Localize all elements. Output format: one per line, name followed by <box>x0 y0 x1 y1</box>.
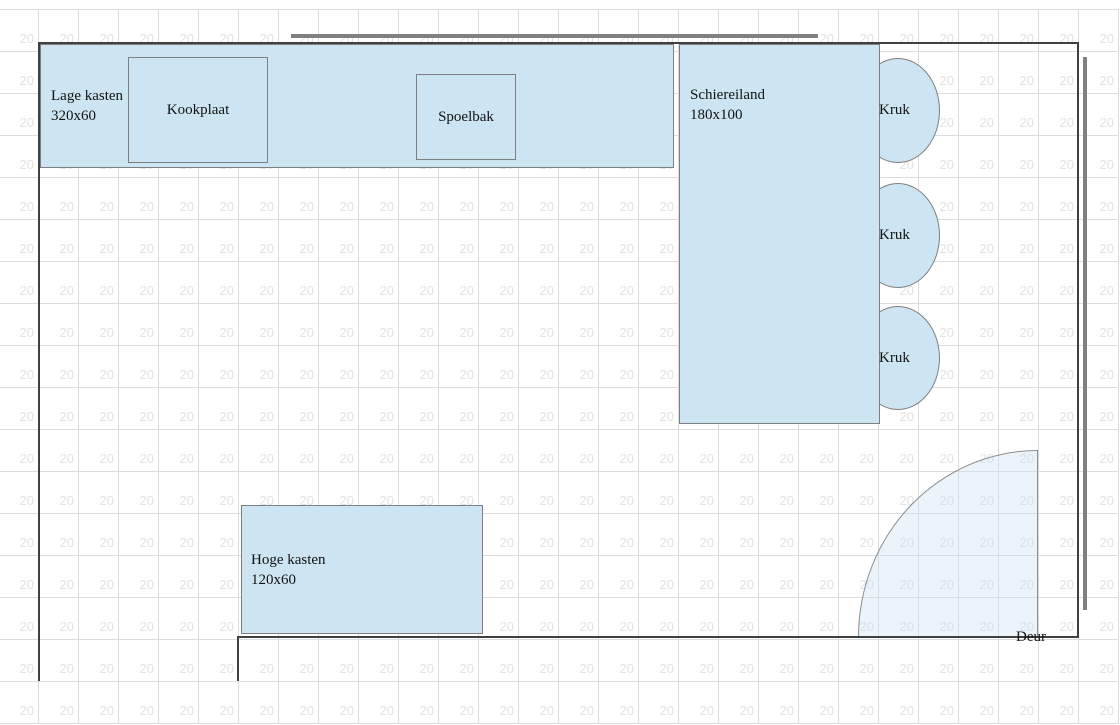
grid-cell: 20 <box>519 262 559 304</box>
grid-cell: 20 <box>0 388 39 430</box>
grid-cell: 20 <box>0 52 39 94</box>
grid-cell: 20 <box>439 430 479 472</box>
grid-cell: 20 <box>239 640 279 682</box>
grid-cell: 20 <box>599 262 639 304</box>
grid-cell: 20 <box>1039 94 1079 136</box>
grid-cell: 20 <box>999 304 1039 346</box>
grid-cell: 20 <box>759 640 799 682</box>
grid-cell: 20 <box>399 388 439 430</box>
grid-cell: 20 <box>519 220 559 262</box>
grid-cell: 20 <box>599 640 639 682</box>
grid-cell: 20 <box>0 556 39 598</box>
grid-cell: 20 <box>639 178 679 220</box>
grid-cell: 20 <box>559 178 599 220</box>
grid-cell: 20 <box>559 598 599 640</box>
grid-cell: 20 <box>559 430 599 472</box>
grid-cell: 20 <box>639 430 679 472</box>
grid-cell: 20 <box>599 598 639 640</box>
grid-cell: 20 <box>0 10 39 52</box>
wall-bottom-stub <box>237 636 239 681</box>
grid-cell: 20 <box>1079 682 1119 724</box>
grid-cell: 20 <box>599 178 639 220</box>
grid-cell: 20 <box>0 640 39 682</box>
peninsula-shape[interactable]: Schiereiland 180x100 <box>679 44 880 424</box>
grid-cell: 20 <box>719 514 759 556</box>
grid-cell: 20 <box>759 598 799 640</box>
grid-cell: 20 <box>199 556 239 598</box>
grid-cell: 20 <box>1039 304 1079 346</box>
grid-cell: 20 <box>199 430 239 472</box>
grid-cell: 20 <box>319 430 359 472</box>
grid-cell: 20 <box>919 682 959 724</box>
grid-cell: 20 <box>959 262 999 304</box>
sink-label: Spoelbak <box>438 107 494 127</box>
grid-cell: 20 <box>359 220 399 262</box>
grid-cell: 20 <box>1039 682 1079 724</box>
grid-cell: 20 <box>239 682 279 724</box>
grid-cell: 20 <box>79 262 119 304</box>
grid-cell: 20 <box>879 640 919 682</box>
grid-cell: 20 <box>119 430 159 472</box>
grid-cell: 20 <box>359 640 399 682</box>
grid-cell: 20 <box>399 682 439 724</box>
low-cabinets-size: 320x60 <box>51 106 123 126</box>
grid-cell: 20 <box>399 262 439 304</box>
grid-cell: 20 <box>759 556 799 598</box>
grid-cell: 20 <box>599 472 639 514</box>
grid-cell: 20 <box>639 220 679 262</box>
grid-cell: 20 <box>79 598 119 640</box>
grid-cell: 20 <box>199 304 239 346</box>
grid-cell: 20 <box>319 304 359 346</box>
grid-cell: 20 <box>679 430 719 472</box>
grid-cell: 20 <box>199 514 239 556</box>
grid-cell: 20 <box>479 556 519 598</box>
grid-cell: 20 <box>959 178 999 220</box>
tall-cabinets-label: Hoge kasten <box>251 550 326 570</box>
grid-cell: 20 <box>519 640 559 682</box>
grid-cell: 20 <box>0 346 39 388</box>
grid-cell: 20 <box>999 10 1039 52</box>
grid-cell: 20 <box>159 472 199 514</box>
wall-right <box>1077 42 1079 638</box>
grid-cell: 20 <box>559 388 599 430</box>
grid-cell: 20 <box>279 304 319 346</box>
grid-cell: 20 <box>559 556 599 598</box>
grid-cell: 20 <box>479 640 519 682</box>
grid-cell: 20 <box>0 94 39 136</box>
grid-cell: 20 <box>999 52 1039 94</box>
grid-cell: 20 <box>319 388 359 430</box>
grid-cell: 20 <box>199 262 239 304</box>
grid-cell: 20 <box>39 430 79 472</box>
grid-cell: 20 <box>999 178 1039 220</box>
wall-marker-right <box>1083 57 1087 610</box>
grid-cell: 20 <box>639 346 679 388</box>
grid-cell: 20 <box>599 346 639 388</box>
stool-label: Kruk <box>879 350 910 366</box>
grid-cell: 20 <box>519 178 559 220</box>
grid-cell: 20 <box>559 346 599 388</box>
grid-cell: 20 <box>799 472 839 514</box>
cooktop-shape[interactable]: Kookplaat <box>128 57 268 163</box>
grid-cell: 20 <box>279 262 319 304</box>
grid-cell: 20 <box>319 682 359 724</box>
grid-cell: 20 <box>0 430 39 472</box>
grid-cell: 20 <box>1079 640 1119 682</box>
grid-cell: 20 <box>159 220 199 262</box>
grid-cell: 20 <box>159 178 199 220</box>
grid-cell: 20 <box>679 514 719 556</box>
grid-cell: 20 <box>959 304 999 346</box>
grid-cell: 20 <box>239 262 279 304</box>
grid-cell: 20 <box>839 682 879 724</box>
grid-cell: 20 <box>119 178 159 220</box>
grid-cell: 20 <box>719 640 759 682</box>
grid-cell: 20 <box>519 472 559 514</box>
grid-cell: 20 <box>639 640 679 682</box>
grid-cell: 20 <box>279 640 319 682</box>
grid-cell: 20 <box>319 346 359 388</box>
grid-cell: 20 <box>439 388 479 430</box>
grid-cell: 20 <box>799 598 839 640</box>
grid-cell: 20 <box>119 346 159 388</box>
grid-cell: 20 <box>1039 388 1079 430</box>
grid-cell: 20 <box>199 388 239 430</box>
grid-cell: 20 <box>959 682 999 724</box>
tall-cabinets-size: 120x60 <box>251 570 326 590</box>
grid-cell: 20 <box>999 388 1039 430</box>
grid-cell: 20 <box>399 430 439 472</box>
grid-cell: 20 <box>279 430 319 472</box>
grid-cell: 20 <box>39 514 79 556</box>
grid-cell: 20 <box>479 262 519 304</box>
grid-cell: 20 <box>119 388 159 430</box>
grid-cell: 20 <box>959 388 999 430</box>
peninsula-label: Schiereiland <box>690 85 879 105</box>
grid-cell: 20 <box>159 682 199 724</box>
grid-cell: 20 <box>199 682 239 724</box>
grid-cell: 20 <box>1039 430 1079 472</box>
grid-cell: 20 <box>359 304 399 346</box>
grid-cell: 20 <box>0 136 39 178</box>
grid-cell: 20 <box>759 682 799 724</box>
grid-cell: 20 <box>879 682 919 724</box>
grid-cell: 20 <box>799 430 839 472</box>
grid-cell: 20 <box>1039 514 1079 556</box>
grid-cell: 20 <box>0 178 39 220</box>
grid-cell: 20 <box>679 598 719 640</box>
grid-cell: 20 <box>279 178 319 220</box>
grid-cell: 20 <box>359 682 399 724</box>
grid-cell: 20 <box>479 472 519 514</box>
grid-cell: 20 <box>199 220 239 262</box>
grid-cell: 20 <box>639 514 679 556</box>
grid-cell: 20 <box>799 556 839 598</box>
grid-cell: 20 <box>479 304 519 346</box>
stool-label: Kruk <box>879 102 910 118</box>
grid-cell: 20 <box>159 640 199 682</box>
grid-cell: 20 <box>719 556 759 598</box>
grid-cell: 20 <box>919 640 959 682</box>
grid-cell: 20 <box>279 682 319 724</box>
grid-cell: 20 <box>519 430 559 472</box>
grid-cell: 20 <box>399 304 439 346</box>
grid-cell: 20 <box>319 178 359 220</box>
grid-cell: 20 <box>159 556 199 598</box>
grid-cell: 20 <box>39 682 79 724</box>
grid-cell: 20 <box>399 178 439 220</box>
grid-cell: 20 <box>639 556 679 598</box>
grid-cell: 20 <box>799 640 839 682</box>
grid-cell: 20 <box>119 514 159 556</box>
grid-cell: 20 <box>79 388 119 430</box>
grid-cell: 20 <box>999 682 1039 724</box>
grid-cell: 20 <box>119 304 159 346</box>
grid-cell: 20 <box>1039 136 1079 178</box>
grid-cell: 20 <box>639 388 679 430</box>
grid-cell: 20 <box>39 346 79 388</box>
grid-cell: 20 <box>399 346 439 388</box>
grid-cell: 20 <box>679 556 719 598</box>
grid-cell: 20 <box>0 682 39 724</box>
grid-cell: 20 <box>519 304 559 346</box>
grid-cell: 20 <box>959 52 999 94</box>
grid-cell: 20 <box>479 598 519 640</box>
grid-cell: 20 <box>239 304 279 346</box>
grid-cell: 20 <box>439 304 479 346</box>
grid-cell: 20 <box>559 514 599 556</box>
grid-cell: 20 <box>999 262 1039 304</box>
grid-cell: 20 <box>159 262 199 304</box>
grid-cell: 20 <box>599 304 639 346</box>
grid-cell: 20 <box>919 10 959 52</box>
grid-cell: 20 <box>439 640 479 682</box>
grid-cell: 20 <box>1039 10 1079 52</box>
grid-cell: 20 <box>79 556 119 598</box>
grid-cell: 20 <box>479 388 519 430</box>
grid-cell: 20 <box>559 220 599 262</box>
grid-cell: 20 <box>999 346 1039 388</box>
grid-cell: 20 <box>959 640 999 682</box>
grid-cell: 20 <box>999 640 1039 682</box>
grid-cell: 20 <box>79 472 119 514</box>
grid-cell: 20 <box>199 346 239 388</box>
wall-left <box>38 42 40 681</box>
grid-cell: 20 <box>439 682 479 724</box>
grid-cell: 20 <box>0 304 39 346</box>
grid-cell: 20 <box>159 514 199 556</box>
grid-cell: 20 <box>0 514 39 556</box>
grid-cell: 20 <box>79 346 119 388</box>
grid-cell: 20 <box>399 640 439 682</box>
grid-cell: 20 <box>839 514 879 556</box>
grid-cell: 20 <box>39 388 79 430</box>
grid-cell: 20 <box>559 304 599 346</box>
grid-cell: 20 <box>959 136 999 178</box>
grid-cell: 20 <box>319 640 359 682</box>
grid-cell: 20 <box>519 682 559 724</box>
tall-cabinets-shape[interactable]: Hoge kasten 120x60 <box>241 505 483 634</box>
grid-cell: 20 <box>519 598 559 640</box>
grid-cell: 20 <box>719 682 759 724</box>
grid-cell: 20 <box>999 94 1039 136</box>
grid-cell: 20 <box>879 10 919 52</box>
grid-cell: 20 <box>119 472 159 514</box>
grid-cell: 20 <box>79 430 119 472</box>
grid-cell: 20 <box>559 262 599 304</box>
grid-cell: 20 <box>359 388 399 430</box>
grid-cell: 20 <box>799 682 839 724</box>
grid-cell: 20 <box>39 304 79 346</box>
sink-shape[interactable]: Spoelbak <box>416 74 516 160</box>
grid-cell: 20 <box>159 346 199 388</box>
grid-cell: 20 <box>319 262 359 304</box>
grid-cell: 20 <box>39 556 79 598</box>
wall-bottom <box>238 636 1079 638</box>
grid-cell: 20 <box>159 430 199 472</box>
wall-top <box>38 42 1079 44</box>
wall-marker-top <box>291 34 818 38</box>
grid-cell: 20 <box>239 220 279 262</box>
grid-cell: 20 <box>439 220 479 262</box>
grid-cell: 20 <box>319 220 359 262</box>
grid-cell: 20 <box>239 178 279 220</box>
grid-cell: 20 <box>279 388 319 430</box>
grid-cell: 20 <box>39 598 79 640</box>
grid-cell: 20 <box>439 262 479 304</box>
grid-cell: 20 <box>639 262 679 304</box>
floor-plan-canvas: 2020202020202020202020202020202020202020… <box>0 0 1120 725</box>
grid-cell: 20 <box>839 472 879 514</box>
stool-label: Kruk <box>879 227 910 243</box>
grid-cell: 20 <box>639 472 679 514</box>
grid-cell: 20 <box>159 598 199 640</box>
grid-cell: 20 <box>519 514 559 556</box>
grid-cell: 20 <box>359 430 399 472</box>
grid-cell: 20 <box>279 220 319 262</box>
grid-cell: 20 <box>1039 178 1079 220</box>
grid-cell: 20 <box>119 262 159 304</box>
grid-cell: 20 <box>519 556 559 598</box>
grid-cell: 20 <box>719 598 759 640</box>
grid-cell: 20 <box>159 304 199 346</box>
grid-cell: 20 <box>1039 472 1079 514</box>
grid-cell: 20 <box>479 178 519 220</box>
grid-cell: 20 <box>1039 52 1079 94</box>
grid-cell: 20 <box>39 178 79 220</box>
grid-cell: 20 <box>119 220 159 262</box>
grid-cell: 20 <box>1039 262 1079 304</box>
grid-cell: 20 <box>39 640 79 682</box>
grid-cell: 20 <box>359 262 399 304</box>
grid-cell: 20 <box>79 178 119 220</box>
grid-cell: 20 <box>639 304 679 346</box>
grid-cell: 20 <box>639 682 679 724</box>
grid-cell: 20 <box>1039 556 1079 598</box>
grid-cell: 20 <box>79 304 119 346</box>
grid-cell: 20 <box>959 346 999 388</box>
grid-cell: 20 <box>839 430 879 472</box>
grid-cell: 20 <box>679 640 719 682</box>
grid-cell: 20 <box>199 640 239 682</box>
grid-cell: 20 <box>359 346 399 388</box>
grid-cell: 20 <box>799 514 839 556</box>
grid-cell: 20 <box>599 556 639 598</box>
grid-cell: 20 <box>39 220 79 262</box>
grid-cell: 20 <box>0 262 39 304</box>
grid-cell: 20 <box>79 220 119 262</box>
grid-cell: 20 <box>599 514 639 556</box>
grid-cell: 20 <box>39 262 79 304</box>
grid-cell: 20 <box>239 430 279 472</box>
grid-cell: 20 <box>359 178 399 220</box>
grid-cell: 20 <box>0 220 39 262</box>
grid-cell: 20 <box>959 94 999 136</box>
grid-cell: 20 <box>599 388 639 430</box>
grid-cell: 20 <box>599 682 639 724</box>
grid-cell: 20 <box>559 640 599 682</box>
grid-cell: 20 <box>1079 10 1119 52</box>
grid-cell: 20 <box>119 598 159 640</box>
door-label: Deur <box>1016 629 1046 645</box>
low-cabinets-label: Lage kasten <box>51 86 123 106</box>
grid-cell: 20 <box>479 346 519 388</box>
grid-cell: 20 <box>639 598 679 640</box>
grid-cell: 20 <box>1039 346 1079 388</box>
grid-cell: 20 <box>479 682 519 724</box>
grid-cell: 20 <box>199 178 239 220</box>
grid-cell: 20 <box>559 682 599 724</box>
grid-cell: 20 <box>879 430 919 472</box>
grid-cell: 20 <box>239 346 279 388</box>
grid-cell: 20 <box>719 472 759 514</box>
grid-cell: 20 <box>439 178 479 220</box>
grid-cell: 20 <box>479 430 519 472</box>
grid-cell: 20 <box>119 556 159 598</box>
grid-cell: 20 <box>0 472 39 514</box>
grid-cell: 20 <box>719 430 759 472</box>
grid-cell: 20 <box>479 514 519 556</box>
grid-cell: 20 <box>0 598 39 640</box>
grid-cell: 20 <box>199 598 239 640</box>
grid-cell: 20 <box>759 514 799 556</box>
grid-cell: 20 <box>999 136 1039 178</box>
grid-cell: 20 <box>119 640 159 682</box>
grid-cell: 20 <box>519 388 559 430</box>
grid-cell: 20 <box>159 388 199 430</box>
grid-cell: 20 <box>679 472 719 514</box>
peninsula-size: 180x100 <box>690 105 879 125</box>
grid-cell: 20 <box>479 220 519 262</box>
grid-cell: 20 <box>1039 220 1079 262</box>
grid-cell: 20 <box>759 430 799 472</box>
grid-cell: 20 <box>439 346 479 388</box>
grid-cell: 20 <box>839 640 879 682</box>
grid-cell: 20 <box>519 346 559 388</box>
grid-cell: 20 <box>239 388 279 430</box>
grid-cell: 20 <box>79 514 119 556</box>
grid-cell: 20 <box>79 682 119 724</box>
grid-cell: 20 <box>999 220 1039 262</box>
grid-cell: 20 <box>599 220 639 262</box>
grid-cell: 20 <box>599 430 639 472</box>
grid-cell: 20 <box>919 430 959 472</box>
grid-cell: 20 <box>39 472 79 514</box>
grid-cell: 20 <box>1039 640 1079 682</box>
grid-cell: 20 <box>759 472 799 514</box>
grid-cell: 20 <box>399 220 439 262</box>
